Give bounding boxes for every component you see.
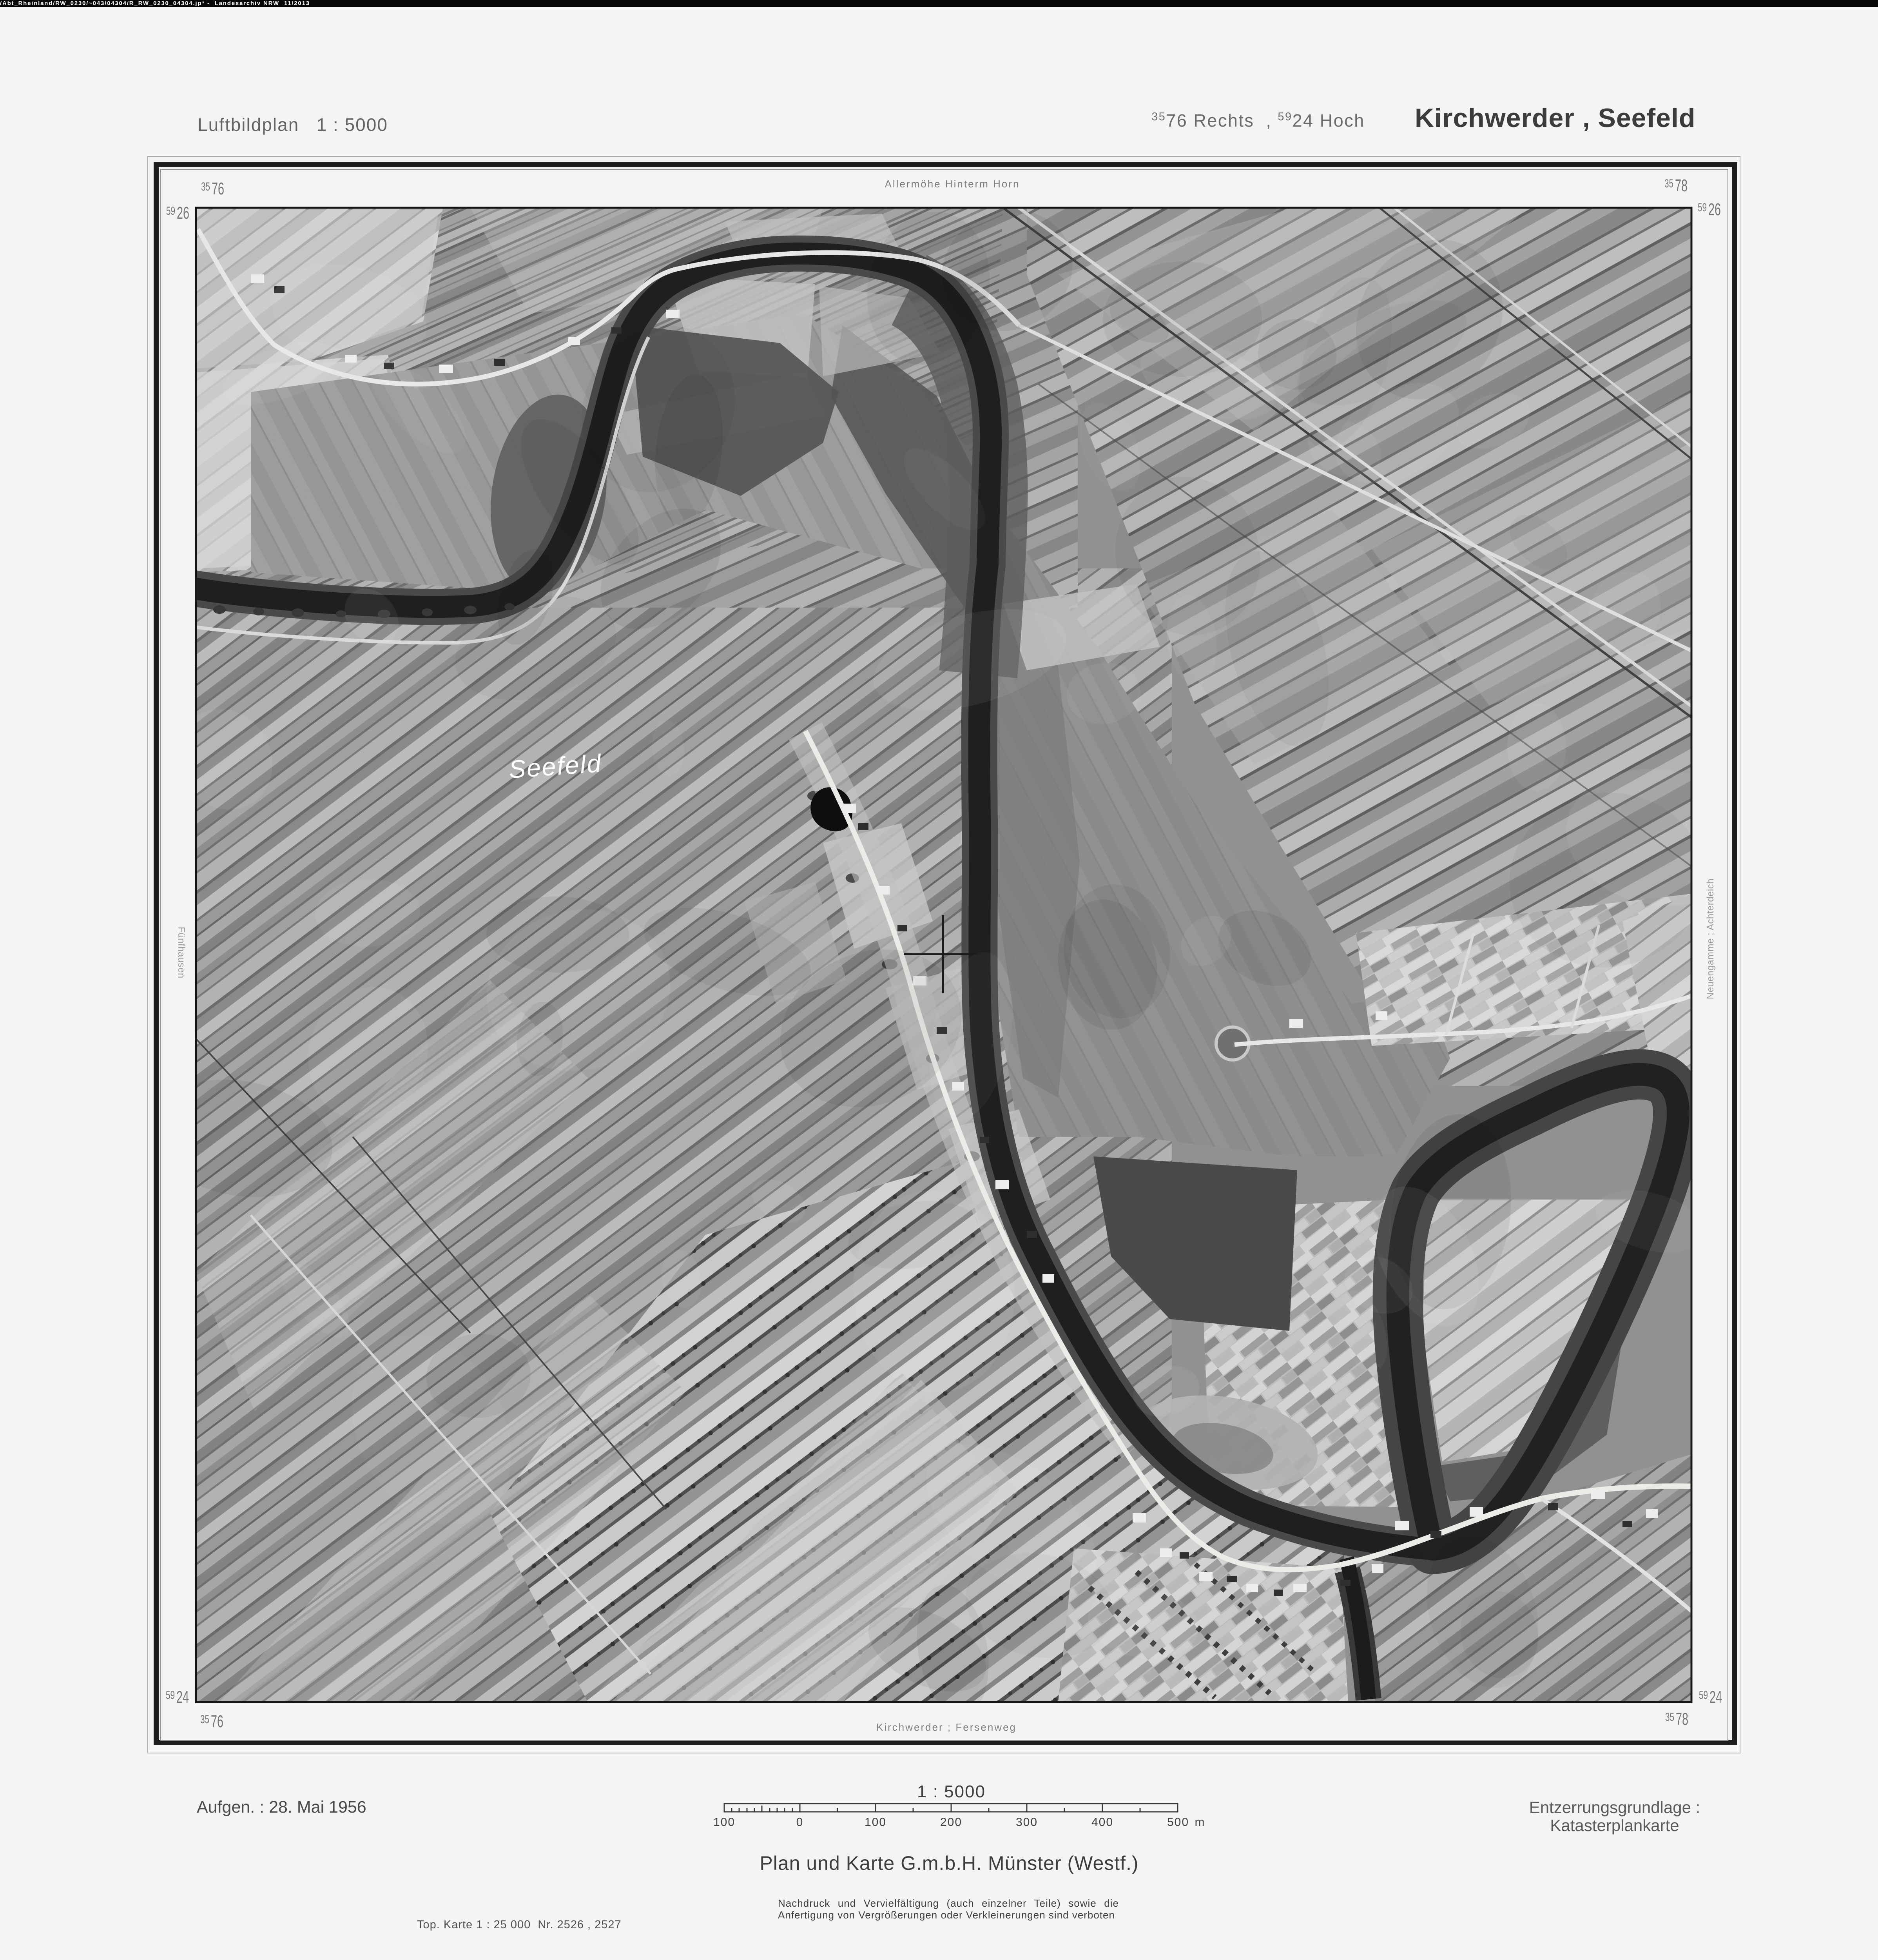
svg-text:59: 59 [166, 1689, 175, 1702]
svg-text:500: 500 [1167, 1816, 1189, 1829]
svg-text:59: 59 [1699, 1689, 1708, 1702]
svg-text:35: 35 [201, 180, 210, 193]
svg-text:Kirchwerder ; Fersenweg: Kirchwerder ; Fersenweg [876, 1721, 1017, 1733]
svg-text:78: 78 [1676, 1710, 1688, 1729]
svg-text:m: m [1195, 1816, 1205, 1829]
svg-text:200: 200 [940, 1816, 962, 1829]
svg-text:300: 300 [1016, 1816, 1038, 1829]
svg-text:Allermöhe Hinterm Horn: Allermöhe Hinterm Horn [885, 178, 1020, 190]
svg-text:24: 24 [1709, 1688, 1722, 1707]
svg-text:76: 76 [212, 179, 224, 198]
svg-text:Fünfhausen: Fünfhausen [176, 927, 187, 978]
svg-text:24: 24 [176, 1688, 189, 1707]
svg-text:26: 26 [177, 203, 189, 223]
svg-text:59: 59 [1698, 201, 1707, 214]
svg-text:100: 100 [865, 1816, 886, 1829]
svg-text:100: 100 [713, 1816, 735, 1829]
svg-text:35: 35 [200, 1713, 209, 1726]
svg-text:78: 78 [1675, 176, 1688, 195]
svg-text:400: 400 [1091, 1816, 1113, 1829]
svg-text:Neuengamme ; Achterdeich: Neuengamme ; Achterdeich [1705, 878, 1716, 999]
svg-text:35: 35 [1664, 177, 1673, 190]
svg-text:26: 26 [1708, 200, 1721, 219]
svg-text:76: 76 [211, 1712, 223, 1731]
svg-text:0: 0 [796, 1816, 804, 1829]
svg-text:59: 59 [166, 205, 175, 218]
svg-text:35: 35 [1665, 1711, 1674, 1724]
